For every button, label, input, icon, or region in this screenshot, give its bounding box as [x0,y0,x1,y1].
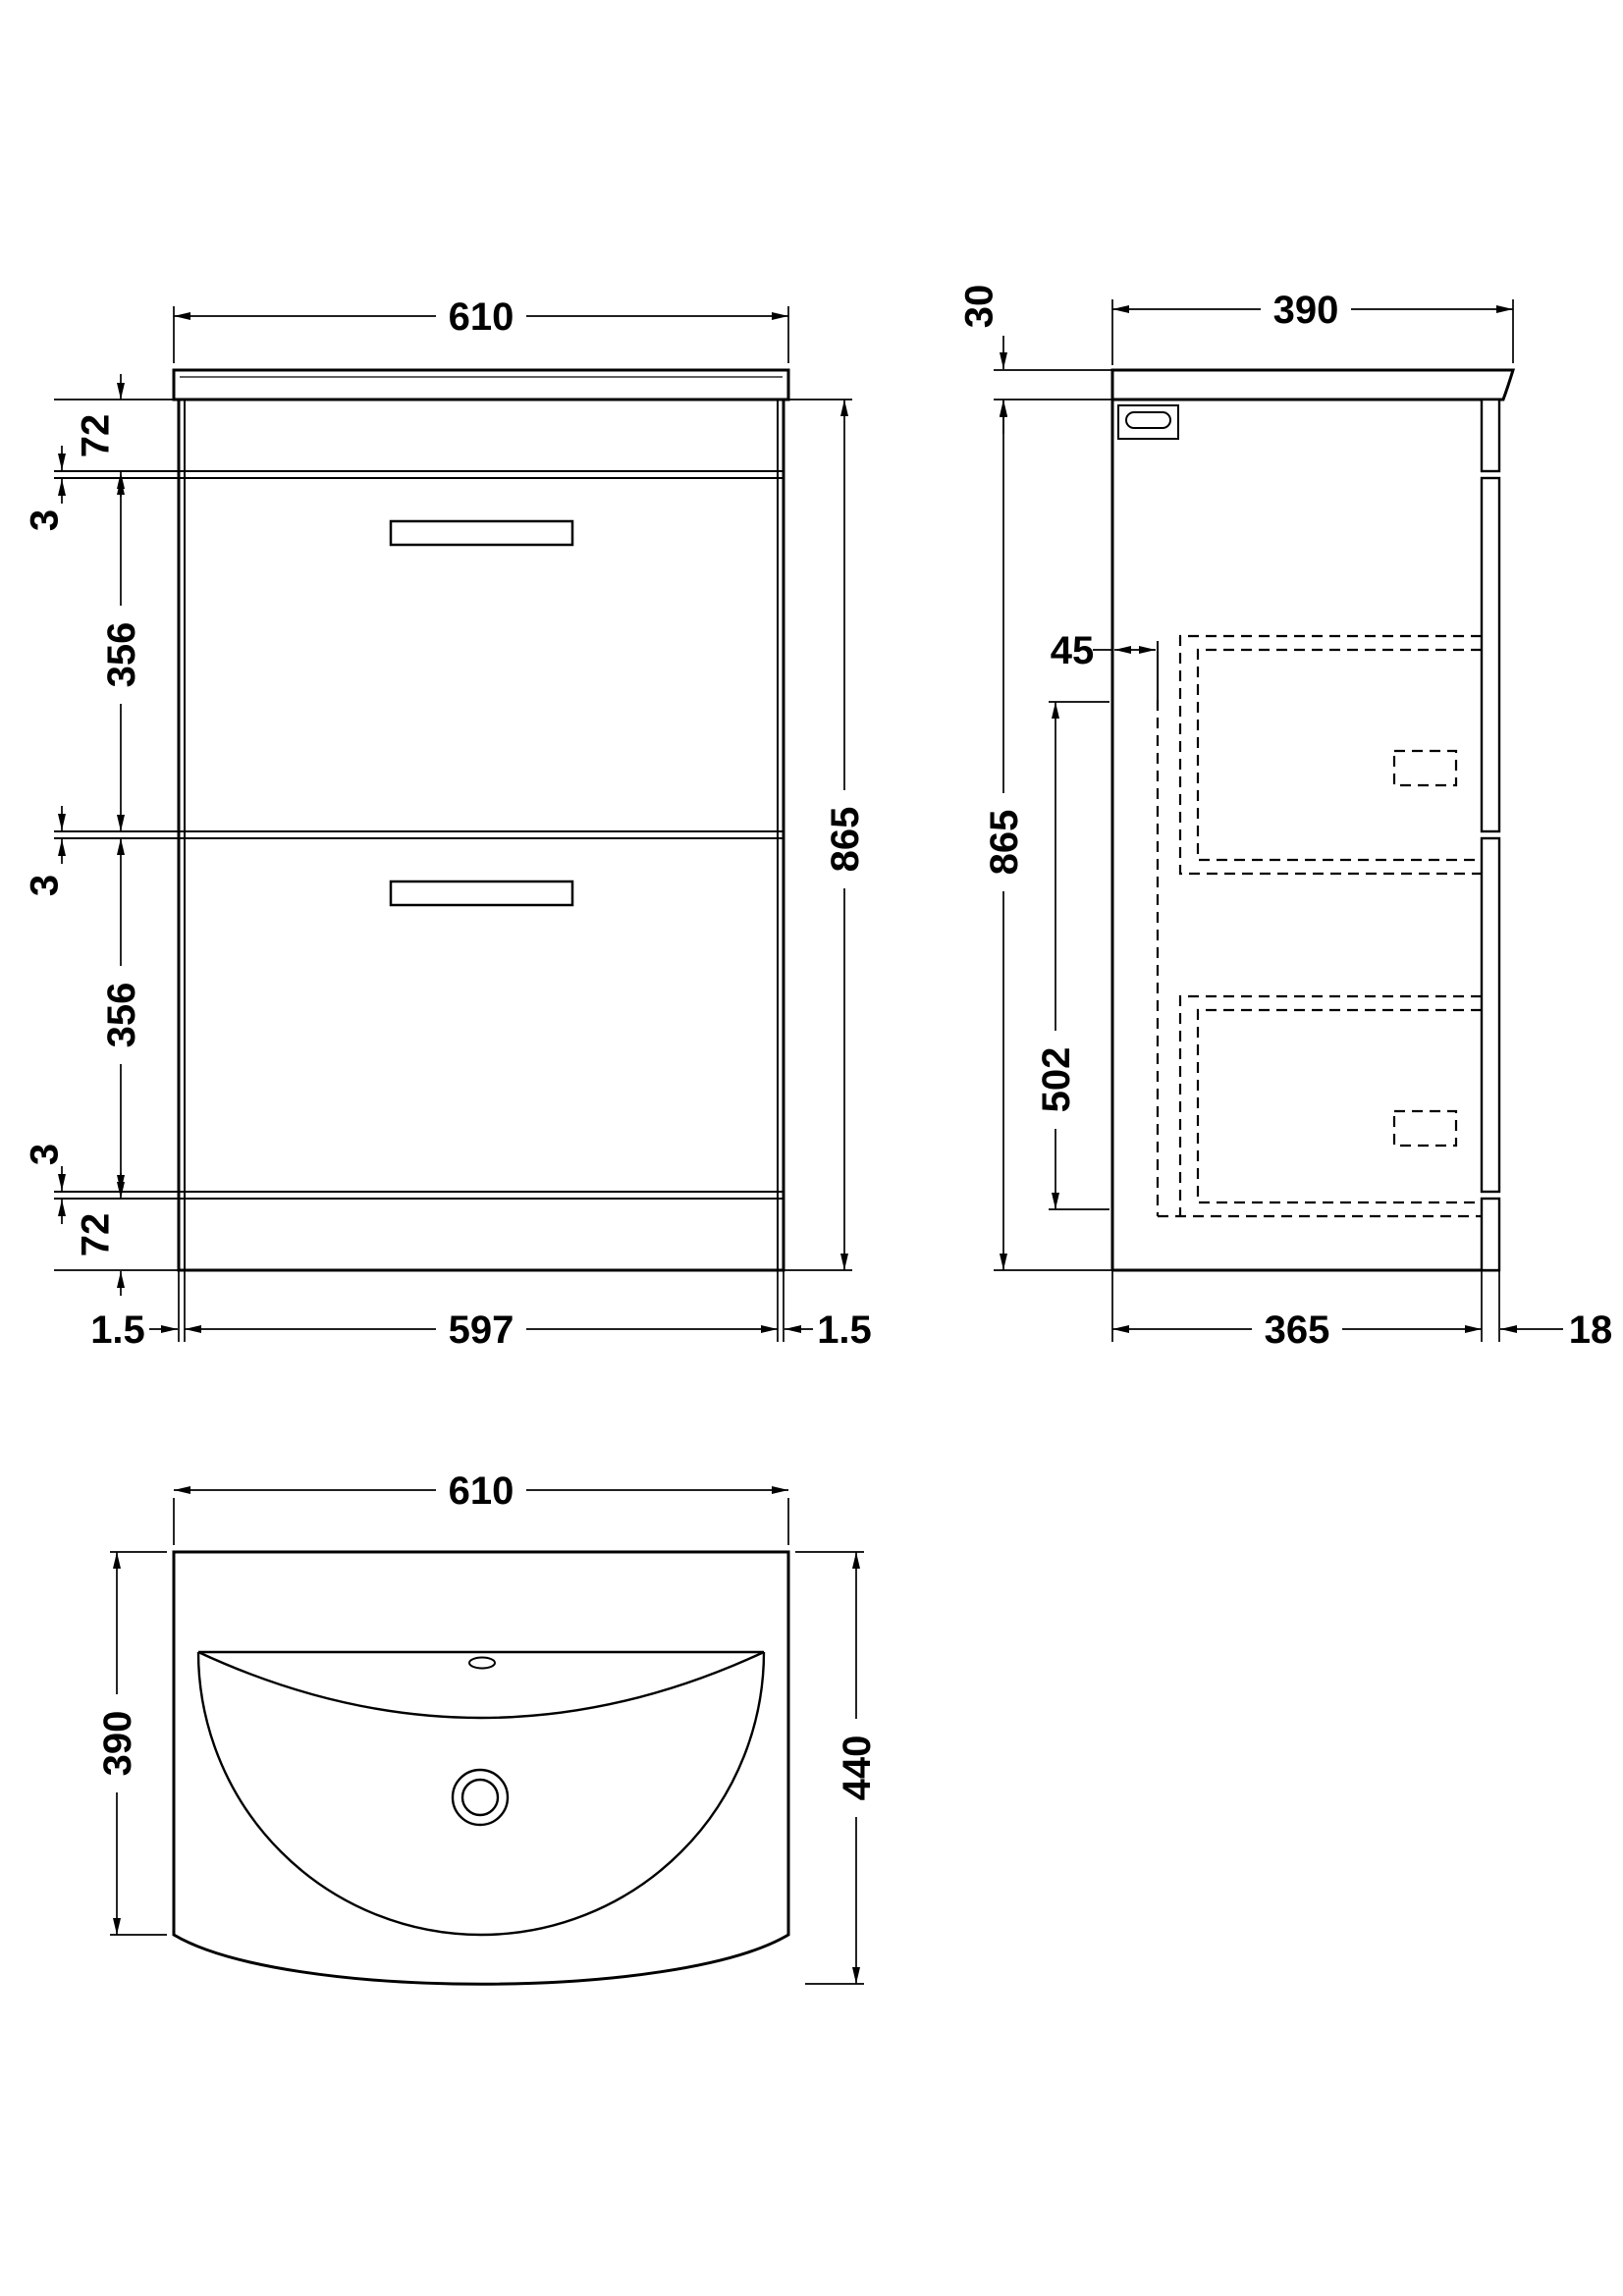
side-countertop [1112,370,1513,400]
dim-front-width-top: 610 [449,295,514,339]
dim-front-rail-top: 72 [75,414,118,458]
drawing-sheet: 610 72 3 356 3 356 3 [0,0,1623,2296]
dim-side-counter-thickness: 30 [958,285,1001,329]
dim-front-gap-mid: 3 [24,875,67,896]
side-drawerbox2-runner [1394,1111,1456,1146]
dim-side-drawer-zone: 502 [1035,1047,1078,1113]
dim-front-drawer1-height: 356 [100,622,143,688]
plan-view: 610 390 440 [96,1469,879,1984]
side-drawerbox2-inner [1198,1010,1482,1202]
drawer1-handle [391,521,572,545]
dim-front-panel-right: 1.5 [817,1308,872,1352]
dim-plan-width: 610 [449,1469,514,1513]
dim-front-internal-width: 597 [449,1308,514,1352]
side-drawerbox1-runner [1394,751,1456,785]
side-front-top-rail [1482,400,1499,471]
drawer2-handle [391,881,572,905]
dim-side-height: 865 [983,810,1026,876]
plan-basin-outline [174,1552,788,1984]
dim-plan-depth-right: 440 [836,1735,879,1801]
technical-drawing-canvas: 610 72 3 356 3 356 3 [0,0,1623,2296]
side-drawerbox1-outer [1180,636,1482,874]
dim-front-rail-bottom: 72 [75,1213,118,1257]
dim-front-panel-left: 1.5 [90,1308,145,1352]
dim-plan-depth-left: 390 [96,1711,139,1777]
side-drawerbox2-outer [1180,996,1482,1216]
side-front-drawer2 [1482,838,1499,1192]
side-front-plinth [1482,1199,1499,1270]
front-countertop [174,370,788,400]
dim-side-depth-bottom: 365 [1265,1308,1330,1352]
side-drawerbox1-inner [1198,650,1482,860]
dim-side-front-thickness: 18 [1569,1308,1613,1352]
side-bracket-slot [1126,412,1170,428]
dim-side-clearance: 45 [1051,629,1095,672]
dim-front-gap-top: 3 [24,509,67,531]
front-elevation-view: 610 72 3 356 3 356 3 [24,295,872,1352]
dim-front-drawer2-height: 356 [100,983,143,1048]
side-elevation-view: 390 30 865 45 502 365 18 [958,285,1613,1352]
side-front-drawer1 [1482,478,1499,831]
dim-front-height: 865 [824,807,867,873]
dim-front-gap-bottom: 3 [24,1144,67,1165]
dim-side-depth-top: 390 [1273,289,1339,332]
